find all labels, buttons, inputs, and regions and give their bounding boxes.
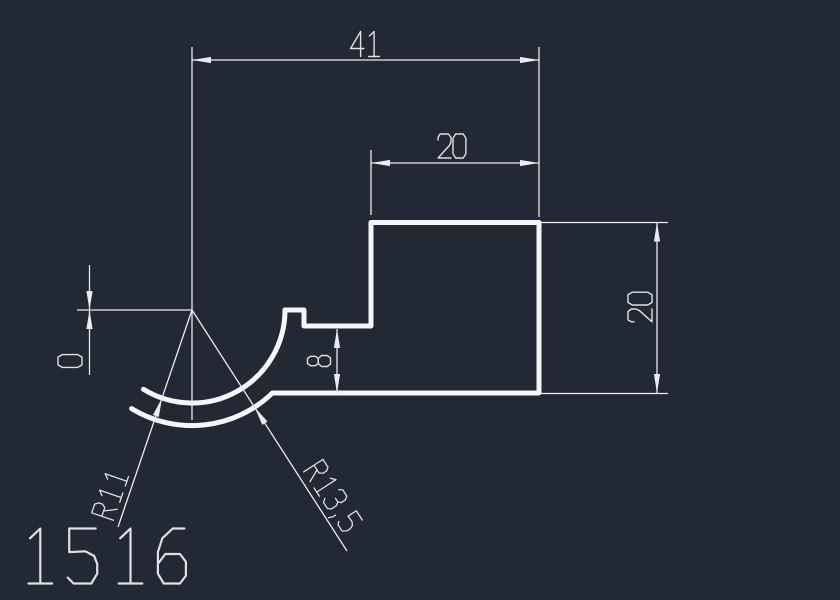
profile-body-path xyxy=(132,223,539,426)
dimension-arrowhead xyxy=(192,57,211,63)
cad-drawing-canvas[interactable] xyxy=(0,0,840,600)
glyph-stroke xyxy=(104,474,127,486)
glyph-stroke xyxy=(369,32,374,57)
dim-8-label xyxy=(308,356,331,367)
glyph-stroke xyxy=(453,134,466,158)
dim-41-label xyxy=(351,32,380,57)
dimension-arrowhead xyxy=(520,57,539,63)
leader-radius-inner xyxy=(118,310,192,527)
glyph-stroke xyxy=(308,356,319,365)
glyph-stroke xyxy=(58,355,82,368)
dim-0-label xyxy=(58,355,82,368)
glyph-stroke xyxy=(68,529,98,584)
dimension-arrowhead xyxy=(520,160,539,166)
glyph-stroke xyxy=(104,505,118,515)
glyph-stroke xyxy=(314,488,319,496)
glyph-stroke xyxy=(328,514,335,520)
drawing-svg xyxy=(0,0,840,600)
glyph-stroke xyxy=(351,32,364,57)
glyph-stroke xyxy=(158,529,186,584)
dimension-arrowhead xyxy=(86,291,92,310)
dimension-arrowhead xyxy=(334,374,340,393)
glyph-stroke xyxy=(628,309,652,322)
dim-20-top-label xyxy=(438,134,466,158)
leader-radius-outer xyxy=(192,310,347,551)
radius-outer-label xyxy=(300,459,362,535)
profile-outline xyxy=(132,223,539,426)
dimension-arrowhead xyxy=(255,407,268,425)
glyph-stroke xyxy=(332,488,348,504)
part-number-label xyxy=(29,529,186,584)
glyph-stroke xyxy=(322,494,339,511)
glyph-stroke xyxy=(314,476,336,492)
glyph-stroke xyxy=(120,529,130,584)
dimension-arrowhead xyxy=(654,223,660,242)
glyph-stroke xyxy=(628,292,652,305)
dimension-arrowhead xyxy=(334,329,340,348)
glyph-stroke xyxy=(337,510,363,533)
glyph-stroke xyxy=(318,356,330,367)
dimension-arrowhead xyxy=(654,374,660,393)
glyph-stroke xyxy=(438,134,451,158)
glyph-stroke xyxy=(98,490,121,502)
dimension-arrowhead xyxy=(371,160,390,166)
glyph-stroke xyxy=(30,529,40,584)
dimension-arrowhead xyxy=(86,310,92,329)
dim-20-right-label xyxy=(628,292,652,322)
dimension-arrowhead xyxy=(153,398,162,417)
